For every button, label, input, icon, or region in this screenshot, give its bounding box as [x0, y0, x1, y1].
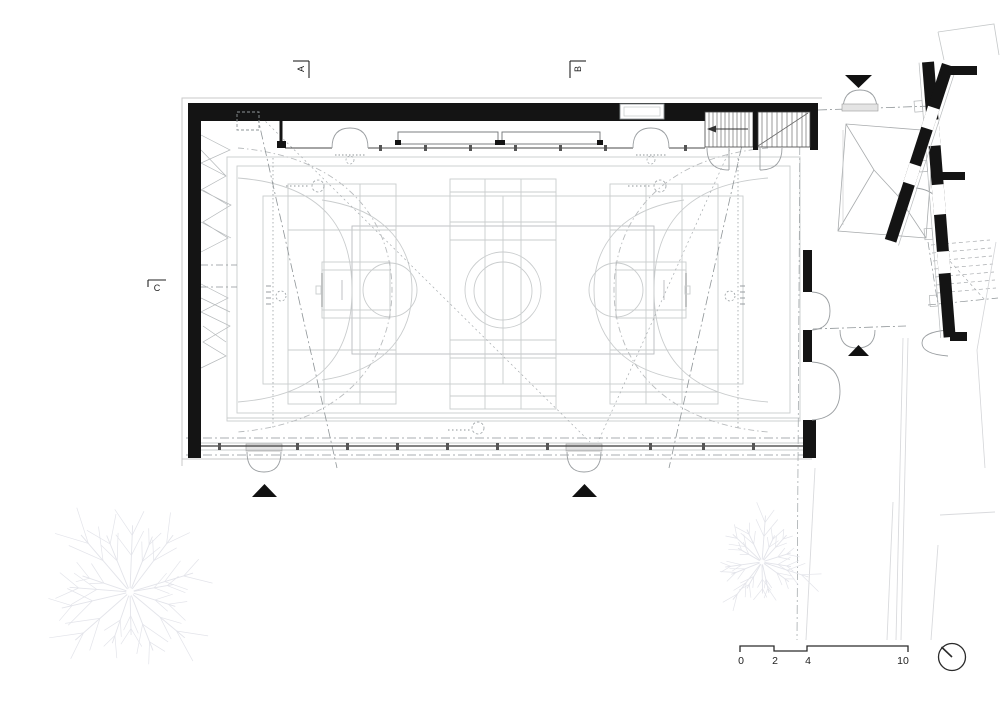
- northeast-wall-end: [810, 103, 818, 150]
- climbing-wall: [201, 135, 231, 368]
- north-needle: [942, 647, 953, 657]
- door-north-2: [633, 128, 669, 148]
- door-thresholds: [246, 104, 878, 451]
- west-wall: [188, 103, 201, 458]
- site-lines: [806, 338, 995, 640]
- tree-canopy: [48, 508, 212, 665]
- section-marker-b: B: [570, 61, 586, 78]
- door-stair-1: [707, 148, 729, 170]
- entrance-triangle-north: [845, 75, 872, 88]
- south-glazing: [201, 443, 803, 450]
- trees: [48, 502, 821, 664]
- north-wall-niche: [620, 104, 664, 119]
- north-indicator: [939, 644, 966, 671]
- stairs-northeast: [705, 112, 810, 150]
- east-wall-seg2: [803, 330, 812, 362]
- partition-and-service-lines: [186, 106, 932, 640]
- court-markings: [227, 148, 800, 432]
- wall-outer-outline: [182, 98, 822, 466]
- scale-label-10: 10: [897, 655, 909, 667]
- entrance-triangle-south-1: [252, 484, 277, 497]
- door-east-1: [812, 292, 830, 330]
- door-east-2: [812, 362, 840, 420]
- section-markers: A B C: [148, 61, 586, 293]
- scale-label-2: 2: [772, 655, 778, 667]
- section-label-a: A: [296, 66, 306, 72]
- floor-plan-drawing: A B C 0 2 4 10: [0, 0, 1000, 707]
- section-label-c: C: [154, 283, 161, 293]
- tree-canopy: [720, 502, 822, 611]
- section-label-b: B: [573, 66, 583, 72]
- door-lobby-south: [840, 330, 875, 348]
- floor-plan-page: A B C 0 2 4 10: [0, 0, 1000, 707]
- door-north-1: [332, 128, 368, 148]
- east-wall-seg3: [803, 420, 816, 458]
- section-marker-a: A: [293, 61, 309, 78]
- scale-label-0: 0: [738, 655, 744, 667]
- door-stair-2: [760, 148, 782, 170]
- section-marker-c: C: [148, 280, 166, 293]
- scale-label-4: 4: [805, 655, 811, 667]
- entrance-triangle-south-2: [572, 484, 597, 497]
- east-wall-seg1: [803, 250, 812, 292]
- scale-bar: 0 2 4 10: [738, 646, 909, 667]
